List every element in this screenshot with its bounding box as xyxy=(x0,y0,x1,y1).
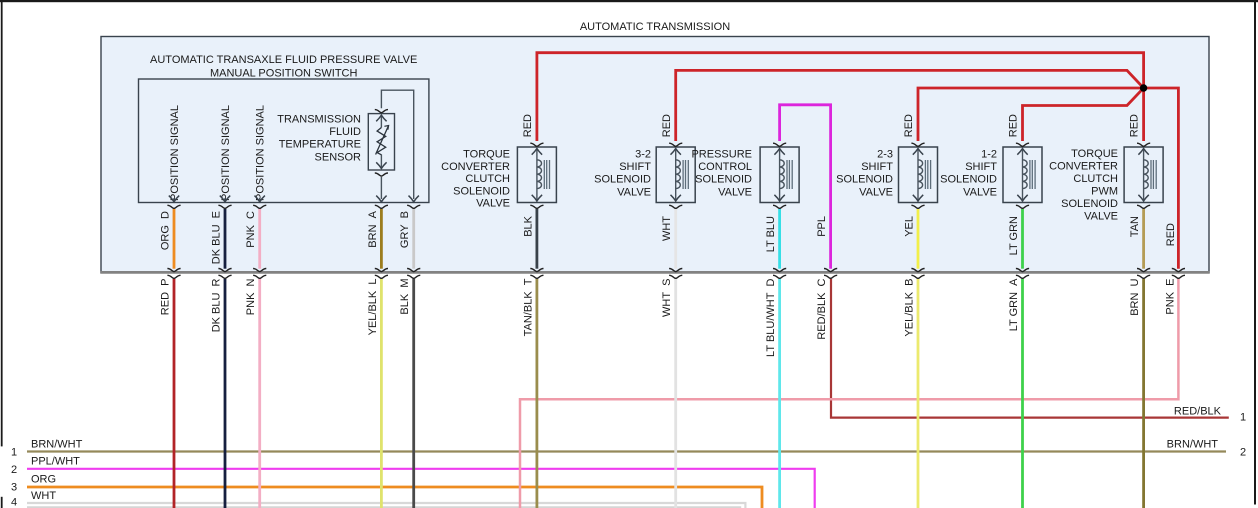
svg-text:RED: RED xyxy=(903,114,915,137)
svg-text:LT GRN: LT GRN xyxy=(1008,216,1020,255)
svg-text:BRN/WHT: BRN/WHT xyxy=(1167,439,1219,451)
svg-text:SOLENOID: SOLENOID xyxy=(940,174,997,186)
svg-text:SOLENOID: SOLENOID xyxy=(594,174,651,186)
svg-text:WHT: WHT xyxy=(31,490,56,502)
svg-text:RED: RED xyxy=(1008,114,1020,137)
svg-text:VALVE: VALVE xyxy=(963,186,997,198)
svg-text:VALVE: VALVE xyxy=(718,186,752,198)
svg-text:CONVERTER: CONVERTER xyxy=(1049,161,1118,173)
svg-text:VALVE: VALVE xyxy=(1084,211,1118,223)
svg-text:BRN/WHT: BRN/WHT xyxy=(31,439,83,451)
svg-text:SOLENOID: SOLENOID xyxy=(695,174,752,186)
svg-text:RED/BLK C: RED/BLK C xyxy=(816,278,828,339)
svg-text:BLK M: BLK M xyxy=(399,279,411,315)
svg-text:TRANSMISSION: TRANSMISSION xyxy=(277,114,361,126)
svg-text:CLUTCH: CLUTCH xyxy=(465,173,510,185)
svg-text:BLK: BLK xyxy=(522,215,534,236)
svg-text:1: 1 xyxy=(1240,412,1246,424)
svg-text:ORG D: ORG D xyxy=(160,211,172,250)
svg-text:CONTROL: CONTROL xyxy=(698,161,752,173)
svg-text:RED: RED xyxy=(1165,223,1177,246)
svg-text:TAN: TAN xyxy=(1129,216,1141,237)
svg-text:LT GRN A: LT GRN A xyxy=(1008,278,1020,331)
svg-text:FLUID: FLUID xyxy=(329,126,361,138)
svg-text:SHIFT: SHIFT xyxy=(861,161,893,173)
svg-text:CLUTCH: CLUTCH xyxy=(1073,173,1118,185)
svg-text:SHIFT: SHIFT xyxy=(619,161,651,173)
svg-text:RED: RED xyxy=(661,114,673,137)
svg-text:BRN U: BRN U xyxy=(1129,278,1141,315)
svg-text:SOLENOID: SOLENOID xyxy=(453,185,510,197)
svg-text:AUTOMATIC TRANSMISSION: AUTOMATIC TRANSMISSION xyxy=(580,21,730,33)
svg-text:DK BLU R: DK BLU R xyxy=(211,278,223,332)
svg-text:3-2: 3-2 xyxy=(635,149,651,161)
svg-text:CONVERTER: CONVERTER xyxy=(441,161,510,173)
svg-text:3: 3 xyxy=(11,482,17,494)
svg-text:VALVE: VALVE xyxy=(859,186,893,198)
svg-text:SOLENOID: SOLENOID xyxy=(836,174,893,186)
svg-text:PWM: PWM xyxy=(1091,186,1118,198)
svg-text:LT BLU: LT BLU xyxy=(765,216,777,252)
svg-text:PRESSURE: PRESSURE xyxy=(691,149,752,161)
svg-text:WHT: WHT xyxy=(661,216,673,241)
svg-text:2-3: 2-3 xyxy=(877,149,893,161)
svg-text:YEL/BLK L: YEL/BLK L xyxy=(367,279,379,336)
svg-text:BRN A: BRN A xyxy=(367,210,379,247)
svg-text:POSITION SIGNAL: POSITION SIGNAL xyxy=(220,105,232,201)
svg-text:MANUAL POSITION SWITCH: MANUAL POSITION SWITCH xyxy=(210,68,358,80)
svg-text:PNK N: PNK N xyxy=(245,278,257,315)
svg-text:PNK C: PNK C xyxy=(245,211,257,248)
svg-text:WHT S: WHT S xyxy=(661,279,673,318)
svg-text:POSITION SIGNAL: POSITION SIGNAL xyxy=(169,105,181,201)
svg-text:DK BLU E: DK BLU E xyxy=(211,211,223,264)
svg-text:AUTOMATIC TRANSAXLE FLUID PRES: AUTOMATIC TRANSAXLE FLUID PRESSURE VALVE xyxy=(150,54,417,66)
svg-text:TAN/BLK T: TAN/BLK T xyxy=(522,278,534,336)
svg-text:GRY B: GRY B xyxy=(399,211,411,248)
svg-text:1-2: 1-2 xyxy=(981,149,997,161)
svg-text:2: 2 xyxy=(11,464,17,476)
svg-text:4: 4 xyxy=(11,497,17,508)
svg-text:VALVE: VALVE xyxy=(476,198,510,210)
svg-text:LT BLU/WHT D: LT BLU/WHT D xyxy=(765,278,777,356)
svg-text:POSITION SIGNAL: POSITION SIGNAL xyxy=(255,105,267,201)
svg-text:TORQUE: TORQUE xyxy=(463,149,510,161)
svg-text:YEL/BLK B: YEL/BLK B xyxy=(904,279,916,337)
svg-text:RED: RED xyxy=(522,114,534,137)
svg-text:YEL: YEL xyxy=(904,216,916,237)
svg-text:RED/BLK: RED/BLK xyxy=(1174,406,1222,418)
svg-text:2: 2 xyxy=(1240,447,1246,459)
svg-text:RED: RED xyxy=(1129,114,1141,137)
svg-text:1: 1 xyxy=(11,447,17,459)
svg-text:PNK E: PNK E xyxy=(1165,279,1177,315)
svg-text:PPL: PPL xyxy=(816,216,828,237)
svg-text:RED P: RED P xyxy=(160,279,172,316)
svg-text:SHIFT: SHIFT xyxy=(965,161,997,173)
svg-text:ORG: ORG xyxy=(31,474,56,486)
svg-text:SOLENOID: SOLENOID xyxy=(1061,198,1118,210)
svg-text:PPL/WHT: PPL/WHT xyxy=(31,456,80,468)
svg-text:VALVE: VALVE xyxy=(617,186,651,198)
svg-text:SENSOR: SENSOR xyxy=(315,151,362,163)
svg-text:TEMPERATURE: TEMPERATURE xyxy=(279,139,361,151)
svg-text:TORQUE: TORQUE xyxy=(1071,148,1118,160)
